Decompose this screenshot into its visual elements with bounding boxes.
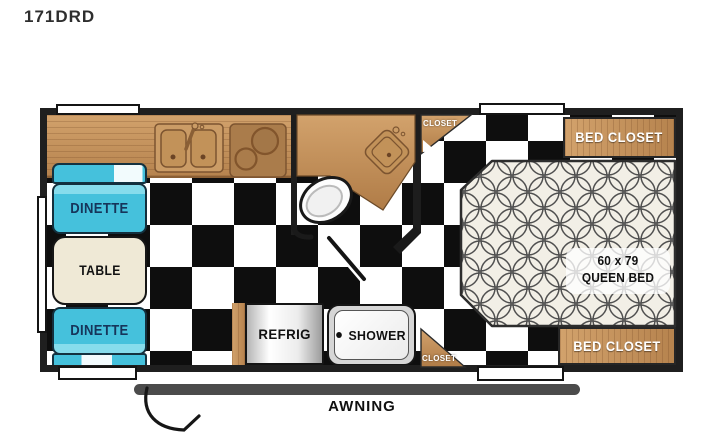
bed-closet-top-label: BED CLOSET: [576, 130, 663, 145]
shower-pan: SHOWER: [334, 310, 409, 360]
window-left: [37, 196, 47, 333]
dinette-backrest-top: [52, 163, 147, 184]
refrig-label: REFRIG: [258, 326, 311, 342]
bed-closet-top: BED CLOSET: [563, 117, 676, 158]
entry-door: [477, 366, 564, 381]
refrigerator: REFRIG: [245, 303, 324, 365]
shower-drain-icon: [336, 332, 342, 338]
window-top-right: [479, 103, 565, 115]
awning-label: AWNING: [297, 398, 427, 415]
wall-kitchen-bath: [291, 115, 297, 235]
refrig-wood-panel: [232, 303, 245, 365]
dinette-bench-bottom: DINETTE: [52, 307, 147, 355]
bed-size-dimensions: 60 x 79: [567, 253, 670, 270]
closet-top-label: CLOSET: [423, 119, 457, 128]
table-label: TABLE: [79, 263, 120, 278]
awning-bar: [134, 384, 580, 395]
window-top-left: [56, 104, 140, 115]
dinette-bottom-label: DINETTE: [70, 323, 128, 339]
floorplan-title: 171DRD: [24, 7, 95, 27]
dinette-bench-top: DINETTE: [52, 183, 147, 234]
bed-size-type: QUEEN BED: [567, 270, 670, 287]
wall-bath-hall: [413, 115, 421, 233]
window-bottom-left: [58, 366, 137, 380]
bed-closet-bottom: BED CLOSET: [558, 327, 676, 365]
floorplan-stage: 171DRD BED CLOSET BED CLOSET REFRIG SHOW…: [0, 0, 720, 432]
dinette-table: TABLE: [52, 236, 147, 305]
closet-bottom-label: CLOSET: [422, 354, 456, 363]
dinette-top-label: DINETTE: [70, 201, 128, 217]
bed-closet-bottom-label: BED CLOSET: [573, 339, 660, 354]
shower-label: SHOWER: [348, 328, 405, 343]
bed-size-label: 60 x 79 QUEEN BED: [567, 253, 670, 287]
